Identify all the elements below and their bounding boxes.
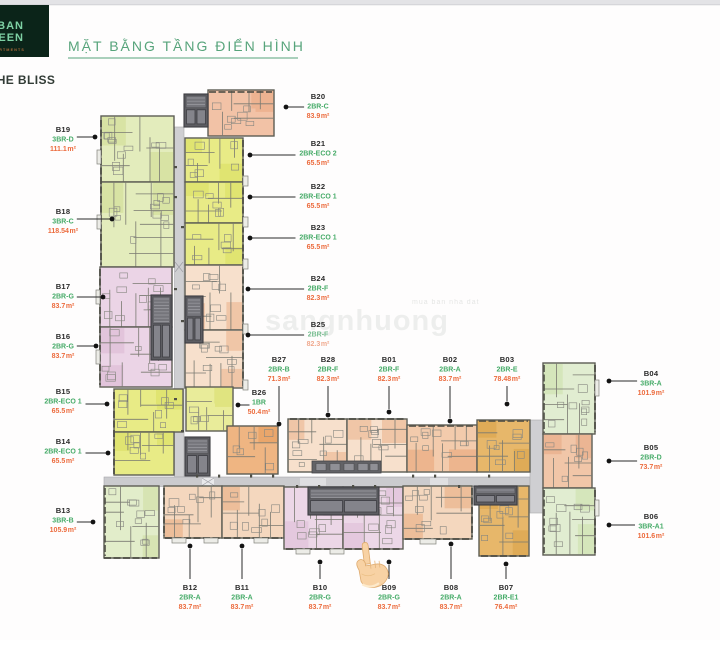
svg-text:83.7 m²: 83.7 m² <box>179 604 202 611</box>
svg-text:83.7 m²: 83.7 m² <box>440 604 463 611</box>
svg-text:83.7 m²: 83.7 m² <box>231 604 254 611</box>
svg-text:3BR-B: 3BR-B <box>52 518 73 525</box>
svg-text:B07: B07 <box>499 583 514 592</box>
svg-text:2BR-C: 2BR-C <box>307 104 328 111</box>
svg-text:2BR-G: 2BR-G <box>309 595 331 602</box>
svg-text:B15: B15 <box>56 387 71 396</box>
svg-text:B24: B24 <box>311 274 326 283</box>
svg-text:2BR-G: 2BR-G <box>378 595 400 602</box>
svg-text:2BR-A: 2BR-A <box>439 367 460 374</box>
svg-text:3BR-D: 3BR-D <box>52 137 73 144</box>
svg-text:B27: B27 <box>272 355 287 364</box>
svg-text:B16: B16 <box>56 332 71 341</box>
svg-text:76.4 m²: 76.4 m² <box>495 604 518 611</box>
svg-text:82.3 m²: 82.3 m² <box>307 295 330 302</box>
svg-text:2BR-A: 2BR-A <box>179 595 200 602</box>
svg-text:2BR-ECO 2: 2BR-ECO 2 <box>299 151 336 158</box>
svg-text:2BR-B: 2BR-B <box>268 367 289 374</box>
svg-text:2BR-G: 2BR-G <box>52 344 74 351</box>
svg-text:83.7 m²: 83.7 m² <box>378 604 401 611</box>
svg-text:2BR-A: 2BR-A <box>440 595 461 602</box>
svg-text:2BR-ECO 1: 2BR-ECO 1 <box>299 235 336 242</box>
svg-text:B04: B04 <box>644 369 659 378</box>
svg-text:2BR-E: 2BR-E <box>496 367 517 374</box>
svg-text:B11: B11 <box>235 583 250 592</box>
svg-text:2BR-E1: 2BR-E1 <box>494 595 519 602</box>
svg-text:B06: B06 <box>644 512 659 521</box>
svg-text:B02: B02 <box>443 355 458 364</box>
svg-text:65.5 m²: 65.5 m² <box>52 458 75 465</box>
svg-text:B22: B22 <box>311 182 326 191</box>
svg-text:111.1 m²: 111.1 m² <box>50 146 77 153</box>
svg-text:B21: B21 <box>311 139 326 148</box>
svg-text:2BR-ECO 1: 2BR-ECO 1 <box>299 194 336 201</box>
svg-text:B28: B28 <box>321 355 336 364</box>
svg-text:2BR-ECO 1: 2BR-ECO 1 <box>44 449 81 456</box>
svg-text:2BR-ECO 1: 2BR-ECO 1 <box>44 399 81 406</box>
svg-text:83.7 m²: 83.7 m² <box>439 376 462 383</box>
svg-text:URBAN: URBAN <box>0 20 24 32</box>
svg-text:B19: B19 <box>56 125 71 134</box>
svg-text:B26: B26 <box>252 388 267 397</box>
svg-text:50.4 m²: 50.4 m² <box>248 409 271 416</box>
svg-text:B01: B01 <box>382 355 397 364</box>
svg-text:B17: B17 <box>56 282 71 291</box>
svg-text:B10: B10 <box>313 583 328 592</box>
svg-text:B14: B14 <box>56 437 71 446</box>
svg-text:B08: B08 <box>444 583 459 592</box>
svg-text:B03: B03 <box>500 355 515 364</box>
svg-text:73.7 m²: 73.7 m² <box>640 464 663 471</box>
svg-text:1BR: 1BR <box>252 400 266 407</box>
svg-text:65.5 m²: 65.5 m² <box>307 160 330 167</box>
svg-text:B18: B18 <box>56 207 71 216</box>
svg-text:B25: B25 <box>311 320 326 329</box>
svg-text:3BR-C: 3BR-C <box>52 219 73 226</box>
svg-text:2BR-F: 2BR-F <box>308 332 329 339</box>
svg-text:B20: B20 <box>311 92 326 101</box>
svg-text:101.9 m²: 101.9 m² <box>638 390 665 397</box>
svg-text:2BR-D: 2BR-D <box>640 455 661 462</box>
svg-text:82.3 m²: 82.3 m² <box>317 376 340 383</box>
svg-text:THE BLISS: THE BLISS <box>0 73 55 87</box>
svg-text:83.7 m²: 83.7 m² <box>52 353 75 360</box>
svg-text:78.48 m²: 78.48 m² <box>494 376 521 383</box>
svg-text:2BR-F: 2BR-F <box>318 367 339 374</box>
svg-text:B12: B12 <box>183 583 198 592</box>
svg-text:83.7 m²: 83.7 m² <box>52 303 75 310</box>
svg-text:B13: B13 <box>56 506 71 515</box>
svg-text:65.5 m²: 65.5 m² <box>307 244 330 251</box>
svg-text:65.5 m²: 65.5 m² <box>307 203 330 210</box>
svg-text:APARTMENTS: APARTMENTS <box>0 48 25 52</box>
svg-text:82.3 m²: 82.3 m² <box>307 341 330 348</box>
svg-text:65.5 m²: 65.5 m² <box>52 408 75 415</box>
svg-text:71.3 m²: 71.3 m² <box>268 376 291 383</box>
svg-text:3BR-A1: 3BR-A1 <box>638 524 663 531</box>
svg-text:105.9 m²: 105.9 m² <box>50 527 77 534</box>
svg-text:118.54 m²: 118.54 m² <box>48 228 79 235</box>
svg-text:B09: B09 <box>382 583 397 592</box>
svg-text:MẶT BẰNG TẦNG ĐIỂN HÌNH: MẶT BẰNG TẦNG ĐIỂN HÌNH <box>68 37 305 54</box>
svg-text:B23: B23 <box>311 223 326 232</box>
svg-text:83.9 m²: 83.9 m² <box>307 113 330 120</box>
svg-text:83.7 m²: 83.7 m² <box>309 604 332 611</box>
svg-text:2BR-F: 2BR-F <box>308 286 329 293</box>
svg-text:3BR-A: 3BR-A <box>640 381 661 388</box>
svg-text:2BR-G: 2BR-G <box>52 294 74 301</box>
svg-text:B05: B05 <box>644 443 659 452</box>
svg-text:GREEN: GREEN <box>0 32 24 44</box>
svg-text:2BR-F: 2BR-F <box>379 367 400 374</box>
svg-text:101.6 m²: 101.6 m² <box>638 533 665 540</box>
svg-text:82.3 m²: 82.3 m² <box>378 376 401 383</box>
svg-text:2BR-A: 2BR-A <box>231 595 252 602</box>
